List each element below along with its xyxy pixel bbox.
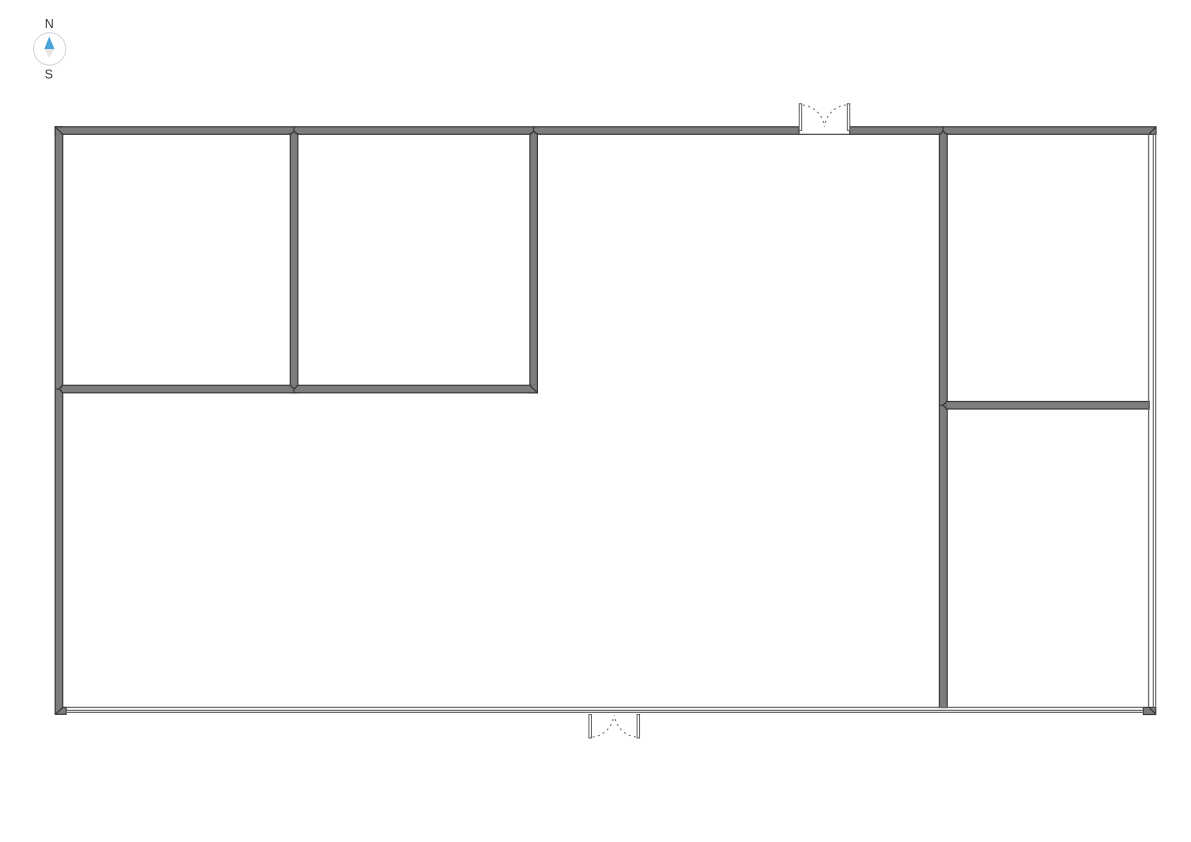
svg-text:S: S <box>45 67 53 81</box>
svg-text:N: N <box>45 17 54 31</box>
